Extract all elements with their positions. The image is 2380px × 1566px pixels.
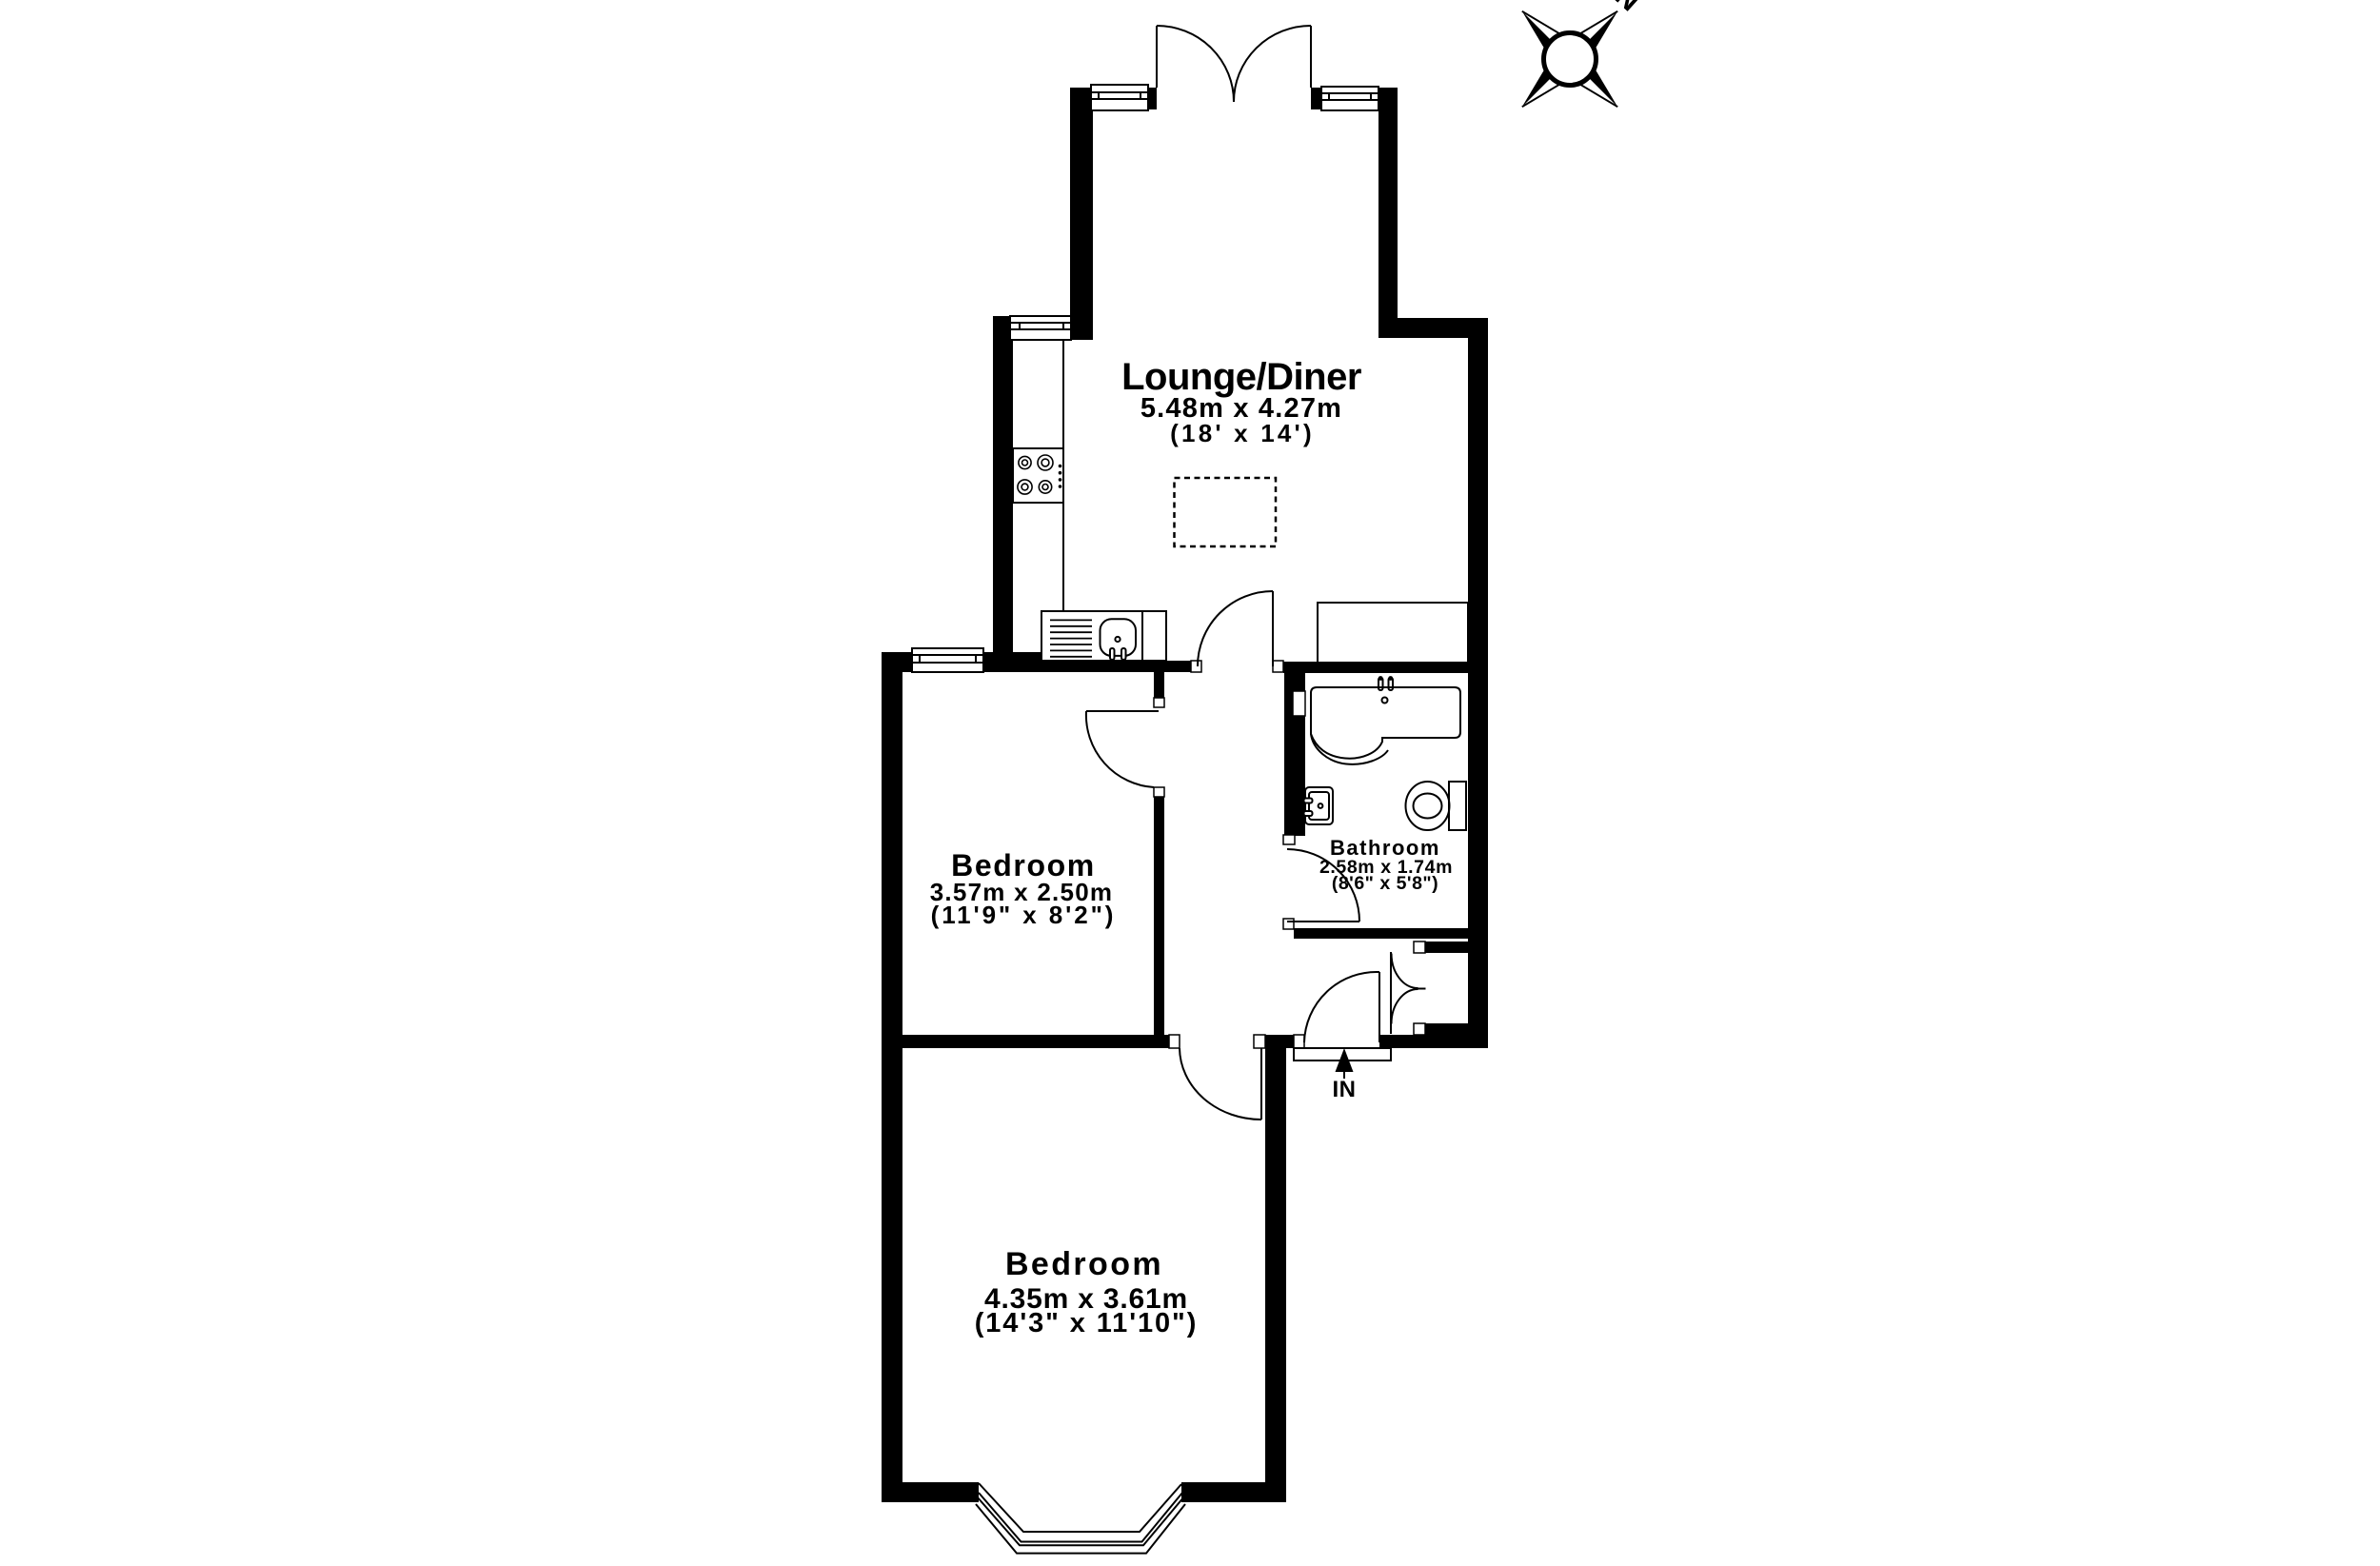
svg-text:(18' x 14'): (18' x 14') [1170,419,1315,447]
svg-text:(11'9" x 8'2"): (11'9" x 8'2") [931,901,1117,929]
svg-text:Bedroom: Bedroom [1005,1246,1163,1282]
svg-text:IN: IN [1333,1077,1357,1102]
svg-text:(14'3" x 11'10"): (14'3" x 11'10") [975,1308,1199,1338]
svg-text:Lounge/Diner: Lounge/Diner [1121,356,1361,398]
svg-text:(8'6" x 5'8"): (8'6" x 5'8") [1332,873,1438,894]
